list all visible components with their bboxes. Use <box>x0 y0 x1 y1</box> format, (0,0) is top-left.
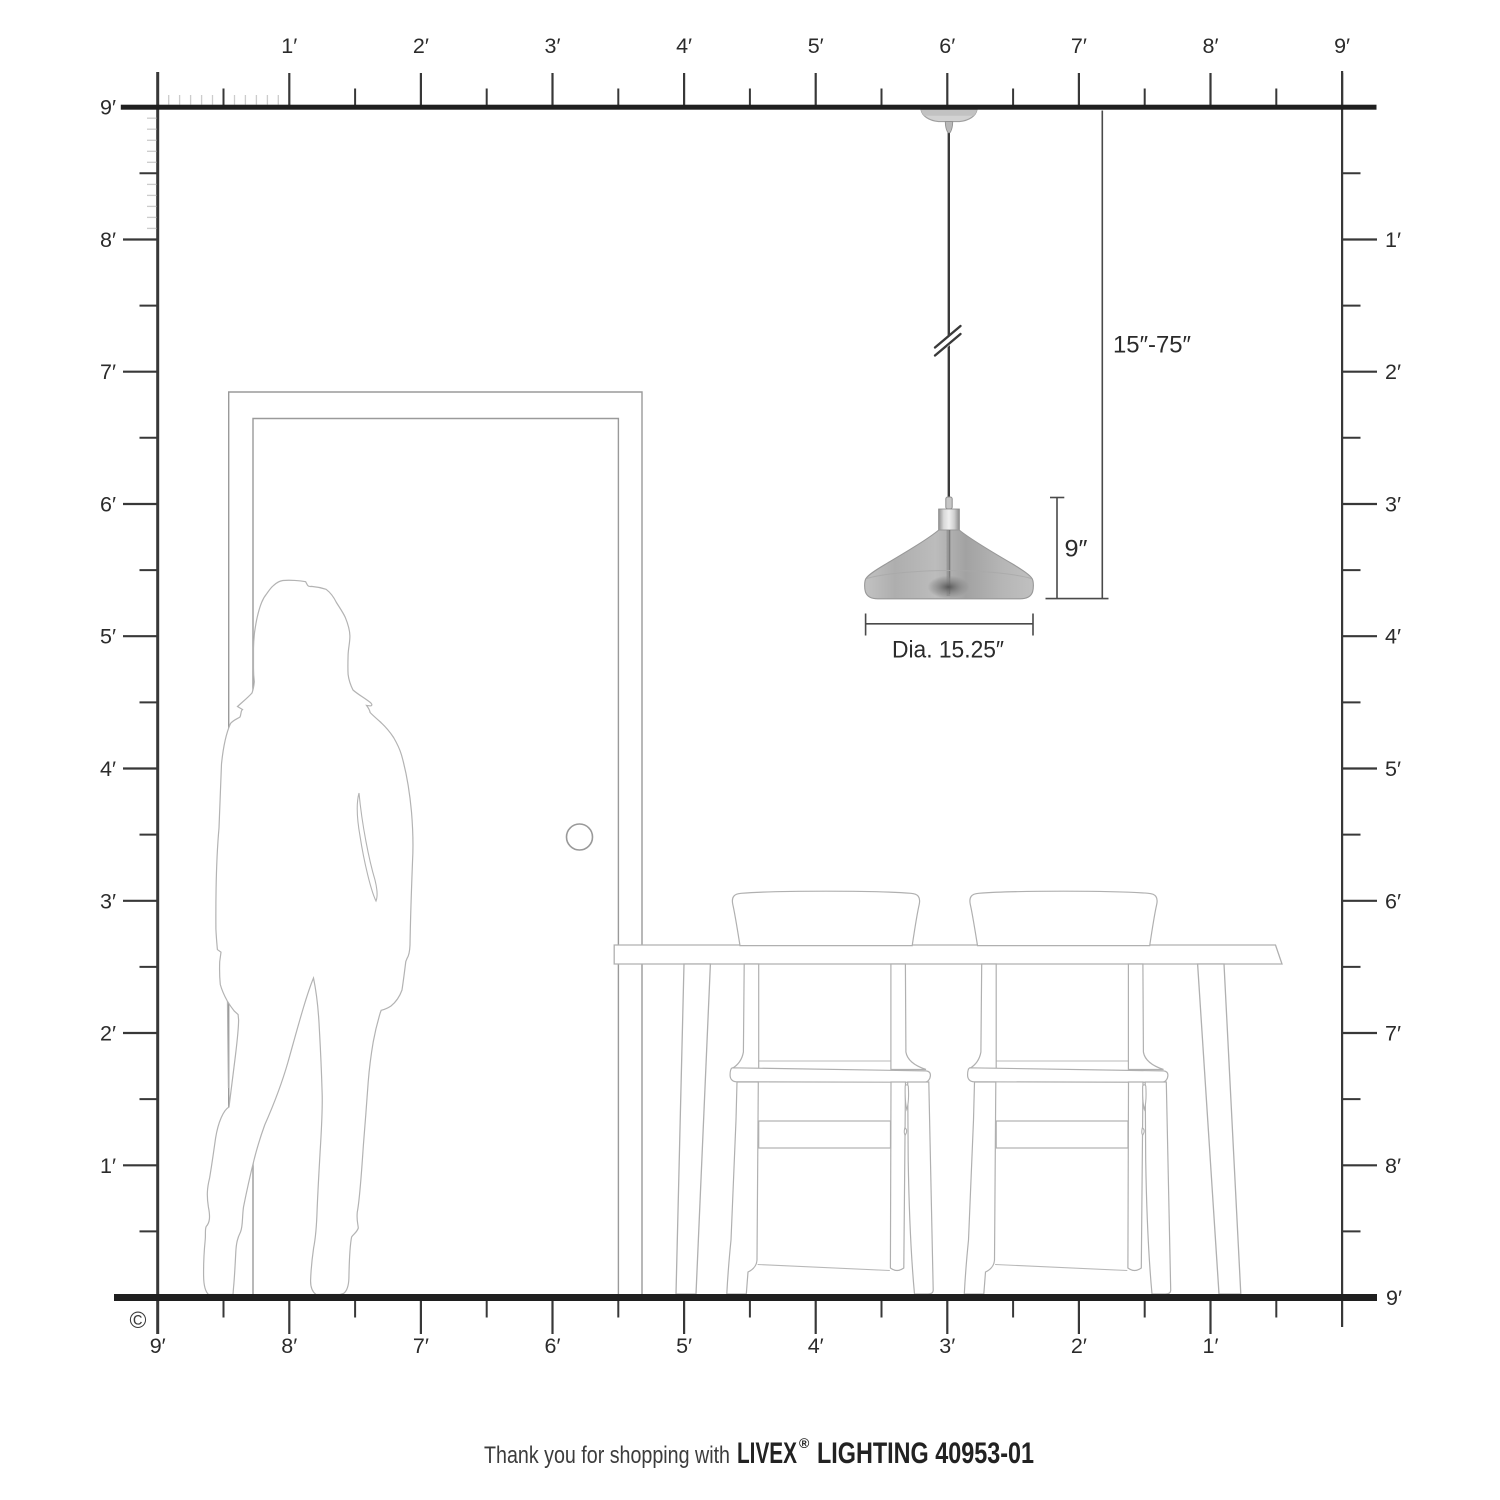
svg-text:3′: 3′ <box>1385 493 1401 517</box>
svg-text:8′: 8′ <box>1203 34 1219 58</box>
svg-text:1′: 1′ <box>100 1154 116 1178</box>
svg-text:1′: 1′ <box>281 34 297 58</box>
svg-text:6′: 6′ <box>100 493 116 517</box>
svg-text:®: ® <box>799 1435 810 1451</box>
svg-text:7′: 7′ <box>1071 34 1087 58</box>
svg-text:LIGHTING 40953-01: LIGHTING 40953-01 <box>817 1437 1034 1470</box>
svg-text:6′: 6′ <box>545 1334 561 1358</box>
svg-text:5′: 5′ <box>676 1334 692 1358</box>
svg-text:1′: 1′ <box>1385 228 1401 252</box>
svg-text:©: © <box>130 1307 147 1333</box>
svg-text:4′: 4′ <box>1385 625 1401 649</box>
svg-text:5′: 5′ <box>1385 757 1401 781</box>
svg-text:3′: 3′ <box>939 1334 955 1358</box>
svg-text:6′: 6′ <box>1385 889 1401 913</box>
svg-text:2′: 2′ <box>1071 1334 1087 1358</box>
svg-text:2′: 2′ <box>100 1022 116 1046</box>
svg-text:4′: 4′ <box>100 757 116 781</box>
svg-text:LIVEX: LIVEX <box>737 1437 797 1470</box>
svg-text:8′: 8′ <box>1385 1154 1401 1178</box>
svg-text:8′: 8′ <box>100 228 116 252</box>
svg-text:9′: 9′ <box>1334 34 1350 58</box>
svg-text:7′: 7′ <box>100 360 116 384</box>
svg-text:9′: 9′ <box>100 96 116 120</box>
svg-text:15″-75″: 15″-75″ <box>1113 332 1191 359</box>
svg-text:7′: 7′ <box>1385 1022 1401 1046</box>
svg-text:1′: 1′ <box>1203 1334 1219 1358</box>
svg-text:2′: 2′ <box>1385 360 1401 384</box>
svg-text:5′: 5′ <box>808 34 824 58</box>
svg-text:3′: 3′ <box>100 889 116 913</box>
svg-text:Thank you for shopping with: Thank you for shopping with <box>484 1442 730 1469</box>
svg-text:Dia. 15.25″: Dia. 15.25″ <box>892 637 1004 664</box>
svg-text:8′: 8′ <box>281 1334 297 1358</box>
svg-text:9″: 9″ <box>1065 536 1088 563</box>
svg-text:9′: 9′ <box>1386 1286 1402 1310</box>
svg-text:2′: 2′ <box>413 34 429 58</box>
svg-text:6′: 6′ <box>939 34 955 58</box>
svg-text:9′: 9′ <box>150 1334 166 1358</box>
svg-text:4′: 4′ <box>808 1334 824 1358</box>
svg-text:7′: 7′ <box>413 1334 429 1358</box>
svg-text:3′: 3′ <box>545 34 561 58</box>
svg-text:4′: 4′ <box>676 34 692 58</box>
svg-text:5′: 5′ <box>100 625 116 649</box>
